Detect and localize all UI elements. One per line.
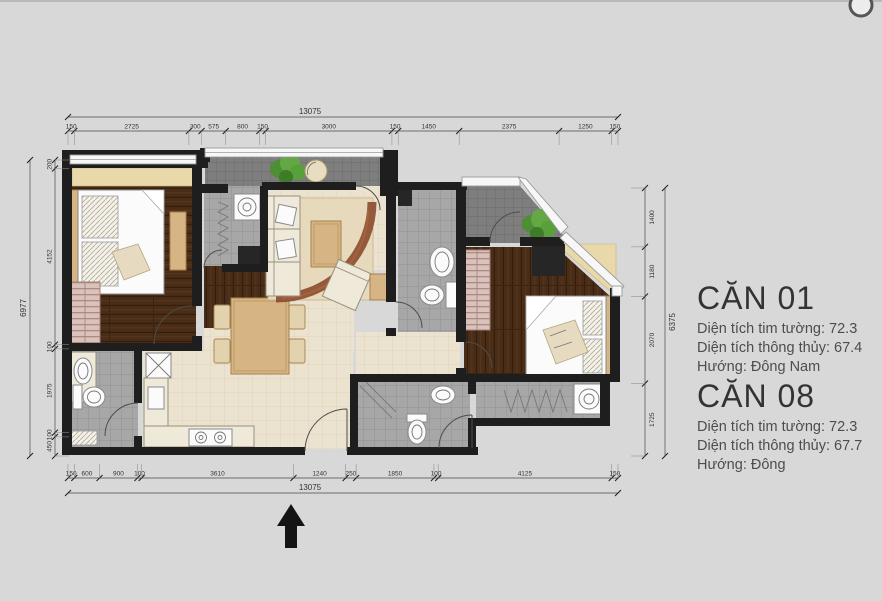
dim-label: 4125	[518, 471, 533, 478]
kitchen-sink	[148, 387, 164, 409]
dining-chair	[289, 305, 305, 329]
living-room-set	[266, 196, 390, 311]
dim-label: 13075	[299, 107, 322, 116]
dim-label: 575	[208, 124, 219, 131]
dim-label: 2725	[124, 124, 139, 131]
toilet-bowl	[83, 387, 105, 407]
balcony-chair	[305, 160, 327, 182]
pillow	[82, 196, 118, 238]
dim-label: 1850	[388, 471, 403, 478]
dim-label: 200	[47, 158, 54, 169]
dim-label: 1975	[47, 383, 54, 398]
dim-label: 3000	[322, 124, 337, 131]
toilet-tank	[73, 385, 82, 409]
dim-label: 100	[47, 429, 54, 440]
top-edge-line	[0, 0, 882, 2]
plant-icon	[279, 170, 293, 184]
dim-label: 600	[81, 471, 92, 478]
sofa-pillow	[276, 239, 297, 260]
unit-title: CĂN 08	[697, 379, 882, 413]
dining-table	[231, 298, 289, 374]
tv-bench-1	[170, 212, 186, 270]
sink	[430, 247, 454, 277]
north-arrow-icon	[277, 504, 305, 548]
dim-label: 1250	[578, 124, 593, 131]
dim-label: 3610	[210, 471, 225, 478]
sink	[74, 358, 92, 384]
dim-label: 300	[190, 124, 201, 131]
unit-info-can-08: CĂN 08 Diện tích tim tường: 72.3 Diện tí…	[697, 379, 882, 475]
washing-machine	[574, 384, 604, 414]
tv-unit-2	[532, 244, 565, 276]
dim-label: 100	[47, 341, 54, 352]
unit-direction: Hướng: Đông Nam	[697, 358, 882, 377]
pillow	[583, 339, 602, 373]
bed-2	[526, 296, 614, 378]
sink	[431, 386, 455, 404]
dim-label: 450	[47, 441, 54, 452]
dim-label: 13075	[299, 483, 322, 492]
wardrobe-1	[70, 282, 100, 344]
bedroom-1-window-sill	[72, 168, 194, 186]
bath-cabinet	[398, 188, 412, 206]
dim-label: 1240	[312, 471, 327, 478]
dim-label: 1450	[421, 124, 436, 131]
unit-area-net: Diện tích thông thủy: 67.7	[697, 437, 882, 456]
dim-label: 2375	[502, 124, 517, 131]
dim-label: 900	[113, 471, 124, 478]
dim-label: 250	[345, 471, 356, 478]
sofa-pillow	[275, 204, 296, 225]
toilet-tank	[446, 282, 457, 308]
bed-1	[70, 190, 164, 294]
unit-area-gross: Diện tích tim tường: 72.3	[697, 320, 882, 339]
dining-chair	[214, 305, 230, 329]
dim-label: 2070	[649, 332, 656, 347]
floorplan-canvas: 1307515027253005758001503000150145023751…	[0, 0, 882, 601]
bay-window-frame	[612, 286, 622, 296]
bath-mat	[71, 431, 97, 445]
unit-area-gross: Diện tích tim tường: 72.3	[697, 418, 882, 437]
toilet-bowl	[420, 285, 444, 305]
dining-chair	[214, 339, 230, 363]
toilet-bowl	[408, 420, 426, 444]
unit-title: CĂN 01	[697, 281, 882, 315]
dim-label: 1725	[649, 412, 656, 427]
dim-label: 4152	[47, 249, 54, 264]
dim-label: 1180	[649, 264, 656, 278]
logo-fragment-icon	[850, 0, 872, 16]
dim-label: 6375	[668, 313, 677, 331]
corridor-floor	[356, 332, 460, 376]
balcony-2-railing	[462, 177, 520, 186]
dim-label: 800	[237, 124, 248, 131]
unit-direction: Hướng: Đông	[697, 456, 882, 475]
wardrobe-2	[464, 250, 490, 330]
pillow	[82, 242, 118, 286]
dim-label: 1400	[649, 210, 656, 225]
coffee-table	[311, 221, 341, 267]
dim-label: 6977	[19, 299, 28, 317]
pillow	[583, 301, 602, 335]
unit-area-net: Diện tích thông thủy: 67.4	[697, 339, 882, 358]
unit-info-can-01: CĂN 01 Diện tích tim tường: 72.3 Diện tí…	[697, 281, 882, 377]
dining-chair	[289, 339, 305, 363]
